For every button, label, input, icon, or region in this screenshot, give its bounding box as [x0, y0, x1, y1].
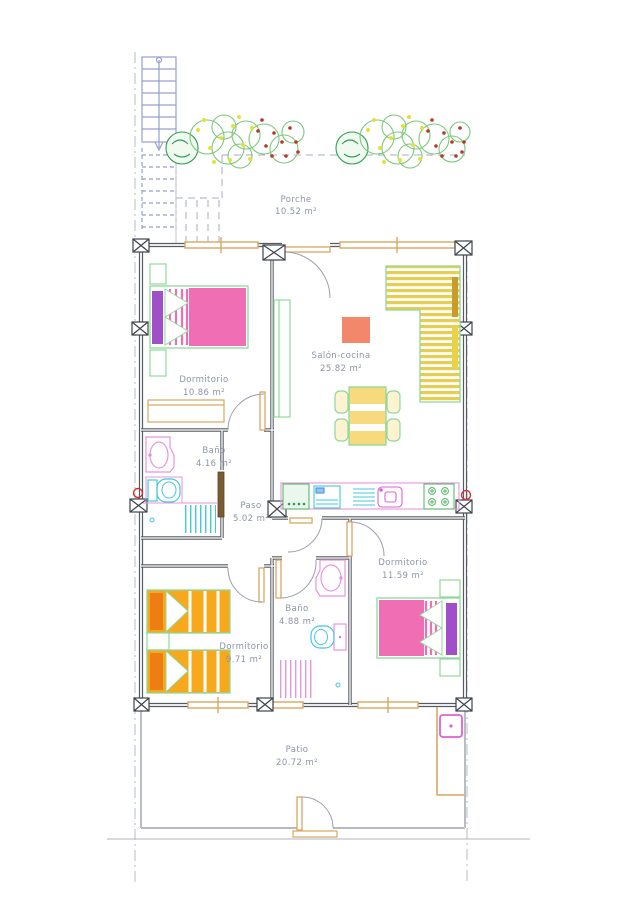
nightstand-icon	[440, 659, 460, 676]
bedroom3-door	[228, 568, 264, 602]
kitchen-hall-door	[288, 518, 322, 552]
twin-bed-icon	[147, 650, 230, 693]
column-marker-icon	[133, 239, 149, 252]
washbasin-icon	[146, 437, 174, 472]
vent-icon	[353, 489, 375, 505]
room-label-bano2-name: Baño	[285, 604, 308, 614]
wardrobe-icon	[274, 300, 290, 417]
room-label-dormitorio2-name: Dormitorio	[378, 558, 427, 568]
dining-table-icon	[349, 387, 386, 445]
room-label-dormitorio1-area: 10.86 m²	[183, 388, 225, 398]
bedroom1-furniture	[148, 264, 248, 422]
room-label-patio-area: 20.72 m²	[276, 758, 318, 768]
dishwasher-icon	[314, 486, 340, 508]
floorplan-drawing: Porche 10.52 m² Dormitorio 10.86 m² Saló…	[0, 0, 636, 900]
column-marker-icon	[456, 500, 472, 513]
room-label-patio-name: Patio	[286, 745, 309, 755]
nightstand-icon	[147, 633, 169, 650]
toilet-icon	[146, 477, 182, 503]
vegetation-left	[166, 115, 304, 168]
water-heater-icon	[440, 715, 462, 737]
column-marker-icon	[130, 499, 147, 512]
room-label-dormitorio1-name: Dormitorio	[179, 375, 228, 385]
bathroom2-fixtures	[278, 560, 346, 698]
vegetation-right	[336, 115, 470, 168]
nightstand-icon	[440, 580, 460, 597]
nightstand-icon	[150, 350, 166, 376]
room-label-salon-name: Salón-cocina	[312, 350, 371, 361]
bedroom1-door	[228, 392, 265, 430]
kitchen-counter-icon	[281, 483, 459, 509]
bedroom2-door	[347, 522, 384, 556]
room-label-paso-area: 5.02 m²	[233, 514, 269, 524]
room-label-dormitorio3-name: Dormitorio	[219, 642, 268, 652]
shower-icon	[278, 660, 340, 698]
room-label-porche-name: Porche	[280, 195, 311, 205]
sofa-l-icon	[386, 266, 460, 402]
column-marker-icon	[263, 245, 285, 260]
rug-icon	[342, 317, 370, 343]
column-marker-icon	[455, 241, 472, 255]
washer-icon	[283, 484, 309, 509]
room-label-salon-area: 25.82 m²	[320, 364, 362, 374]
bathroom2-door	[276, 560, 316, 598]
room-label-bano1-name: Baño	[202, 446, 225, 456]
room-label-bano1-area: 4.16 m²	[196, 459, 232, 469]
column-marker-icon	[456, 698, 472, 711]
room-label-dormitorio2-area: 11.59 m²	[382, 571, 424, 581]
toilet-icon	[311, 624, 346, 650]
floorplan-canvas: Porche 10.52 m² Dormitorio 10.86 m² Saló…	[0, 0, 636, 900]
entry-door	[284, 247, 330, 298]
sink-icon	[378, 487, 402, 507]
patio-door	[293, 797, 337, 837]
salon-furniture	[274, 266, 460, 509]
porch-boundary	[176, 155, 465, 243]
bush-dark-icon	[166, 132, 198, 164]
room-label-paso-name: Paso	[240, 501, 261, 511]
bedroom2-furniture	[377, 580, 460, 676]
nightstand-icon	[150, 264, 166, 284]
room-label-porche-area: 10.52 m²	[275, 207, 317, 217]
bush-dark-icon	[336, 132, 368, 164]
stove-icon	[424, 484, 454, 509]
room-label-dormitorio3-area: 9.71 m²	[226, 655, 262, 665]
sideboard-icon	[148, 400, 224, 422]
bathroom1-door	[218, 472, 224, 517]
patio-items	[437, 707, 464, 795]
twin-bed-icon	[147, 590, 230, 633]
column-marker-icon	[257, 698, 273, 711]
shower-icon	[150, 505, 216, 533]
double-bed-icon	[150, 286, 248, 348]
column-marker-icon	[134, 698, 149, 711]
room-label-bano2-area: 4.88 m²	[279, 617, 315, 627]
washbasin-icon	[316, 560, 345, 596]
column-marker-icon	[132, 322, 148, 335]
bedroom3-furniture	[147, 590, 230, 693]
double-bed-icon	[377, 598, 460, 658]
